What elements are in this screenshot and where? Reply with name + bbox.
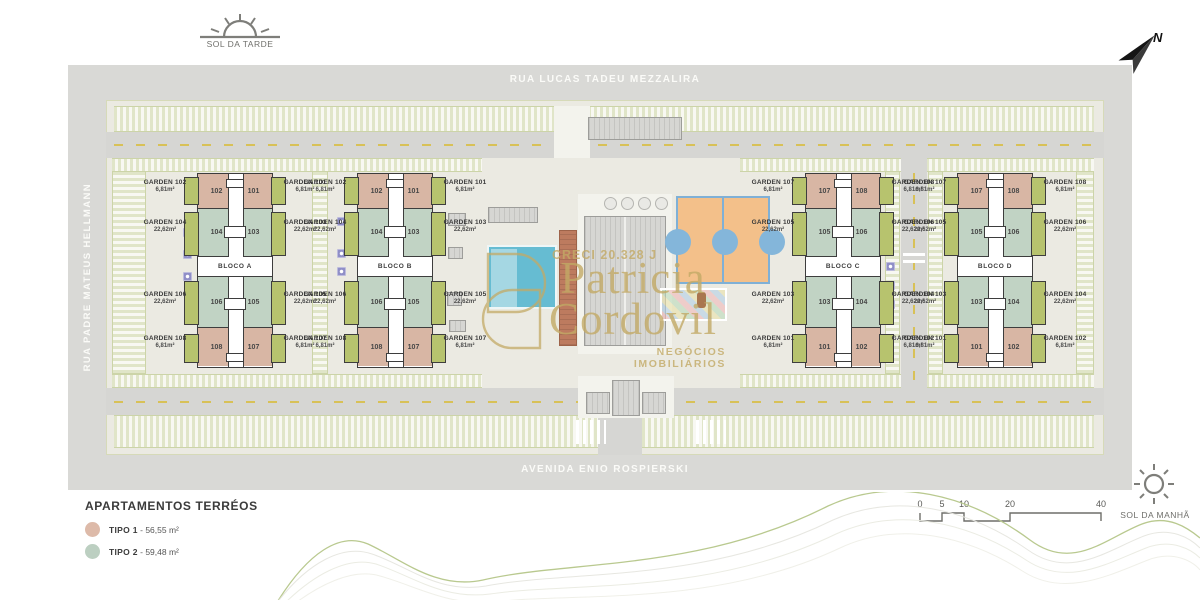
stair-landing (386, 353, 404, 362)
table (655, 197, 668, 210)
garden-label: GARDEN 10622,62m² (297, 291, 353, 307)
legend: APARTAMENTOS TERRÉOS TIPO 1 - 56,55 m² T… (85, 499, 258, 566)
block-name: BLOCO A (198, 257, 272, 277)
stair-landing (224, 226, 246, 238)
crosswalk (576, 420, 606, 444)
garden-label: GARDEN 10522,62m² (745, 219, 801, 235)
garden-label: GARDEN 10422,62m² (1037, 291, 1093, 307)
stair-landing (224, 298, 246, 310)
garden-label: GARDEN 1076,81m² (897, 179, 953, 195)
stair-landing (984, 226, 1006, 238)
garden-labels-right: GARDEN 1016,81m² GARDEN 10322,62m² GARDE… (437, 173, 493, 368)
pool-shallow-area (491, 249, 517, 307)
garden-label: GARDEN 1086,81m² (1037, 179, 1093, 195)
pergola (488, 207, 538, 223)
stair-landing (384, 298, 406, 310)
swimming-pool (487, 245, 557, 309)
table (638, 197, 651, 210)
garden-labels-left: GARDEN 1076,81m² GARDEN 10522,62m² GARDE… (745, 173, 801, 368)
wood-deck (559, 230, 577, 346)
court-goal-circle (665, 229, 691, 255)
garden-label: GARDEN 1016,81m² (897, 335, 953, 351)
garden-label: GARDEN 1086,81m² (137, 335, 193, 351)
garden-label: GARDEN 10522,62m² (437, 291, 493, 307)
site-plan-page: SOL DA TARDE N RUA LUCAS TADEU MEZZALIRA… (0, 0, 1200, 600)
garden-label: GARDEN 1026,81m² (137, 179, 193, 195)
garden-label: GARDEN 10422,62m² (297, 219, 353, 235)
gatehouse-building (586, 392, 610, 414)
covered-parking-building (588, 117, 682, 140)
table (621, 197, 634, 210)
legend-item-tipo1: TIPO 1 - 56,55 m² (85, 522, 258, 537)
garden-label: GARDEN 10322,62m² (437, 219, 493, 235)
garden-label: GARDEN 10422,62m² (137, 219, 193, 235)
block-name: BLOCO B (358, 257, 432, 277)
parking-band (112, 374, 482, 388)
garden-label: GARDEN 1086,81m² (297, 335, 353, 351)
garden-label: GARDEN 1016,81m² (437, 179, 493, 195)
garden-label: GARDEN 10622,62m² (1037, 219, 1093, 235)
bloco-d: GARDEN 1076,81m² GARDEN 10522,62m² GARDE… (957, 173, 1033, 368)
garden-label: GARDEN 1016,81m² (745, 335, 801, 351)
legend-title: APARTAMENTOS TERRÉOS (85, 499, 258, 513)
stair-landing (832, 298, 854, 310)
garden-labels-right: GARDEN 1086,81m² GARDEN 10622,62m² GARDE… (1037, 173, 1093, 368)
block-name: BLOCO D (958, 257, 1032, 277)
street-name-top: RUA LUCAS TADEU MEZZALIRA (106, 74, 1104, 85)
garden-label: GARDEN 1026,81m² (297, 179, 353, 195)
stair-landing (386, 179, 404, 188)
gatehouse-building (612, 380, 640, 416)
roof-ridge (624, 217, 626, 345)
stair-landing (984, 298, 1006, 310)
stair-landing (384, 226, 406, 238)
legend-item-tipo2: TIPO 2 - 59,48 m² (85, 544, 258, 559)
table (604, 197, 617, 210)
garden-labels-left: GARDEN 1076,81m² GARDEN 10522,62m² GARDE… (897, 173, 953, 368)
stair-landing (986, 353, 1004, 362)
clubhouse-building (584, 216, 666, 346)
street-name-bottom: AVENIDA ENIO ROSPIERSKI (106, 464, 1104, 475)
stair-landing (986, 179, 1004, 188)
stair-landing (832, 226, 854, 238)
bloco-c: GARDEN 1076,81m² GARDEN 10522,62m² GARDE… (805, 173, 881, 368)
gatehouse-building (642, 392, 666, 414)
stair-landing (226, 179, 244, 188)
garden-labels-left: GARDEN 1026,81m² GARDEN 10422,62m² GARDE… (137, 173, 193, 368)
playground-toy (697, 292, 706, 308)
block-body: 107108 105106 BLOCO C 103104 101102 (805, 173, 881, 368)
garden-labels-left: GARDEN 1026,81m² GARDEN 10422,62m² GARDE… (297, 173, 353, 368)
garden-label: GARDEN 1026,81m² (1037, 335, 1093, 351)
north-label: N (1153, 30, 1163, 45)
crosswalk (696, 420, 726, 444)
block-name: BLOCO C (806, 257, 880, 277)
garden-label: GARDEN 1076,81m² (437, 335, 493, 351)
block-body: 107108 105106 BLOCO D 103104 101102 (957, 173, 1033, 368)
stair-landing (834, 353, 852, 362)
bloco-a: GARDEN 1026,81m² GARDEN 10422,62m² GARDE… (197, 173, 273, 368)
stair-landing (834, 179, 852, 188)
court-center-circle (712, 229, 738, 255)
contour-waves (268, 492, 1200, 600)
garden-label: GARDEN 10322,62m² (897, 291, 953, 307)
block-body: 102101 104103 BLOCO B 106105 108107 (357, 173, 433, 368)
street-name-left: RUA PADRE MATEUS HELLMANN (68, 100, 106, 455)
bloco-b: GARDEN 1026,81m² GARDEN 10422,62m² GARDE… (357, 173, 433, 368)
sunset-label: SOL DA TARDE (192, 39, 288, 49)
entrance-plaza (554, 106, 590, 158)
tipo2-swatch (85, 544, 100, 559)
stair-landing (226, 353, 244, 362)
playground (660, 288, 727, 321)
parking-band (112, 158, 482, 172)
garden-label: GARDEN 10522,62m² (897, 219, 953, 235)
garden-label: GARDEN 10322,62m² (745, 291, 801, 307)
tipo1-swatch (85, 522, 100, 537)
garden-label: GARDEN 10622,62m² (137, 291, 193, 307)
garden-label: GARDEN 1076,81m² (745, 179, 801, 195)
block-body: 102101 104103 BLOCO A 106105 108107 (197, 173, 273, 368)
